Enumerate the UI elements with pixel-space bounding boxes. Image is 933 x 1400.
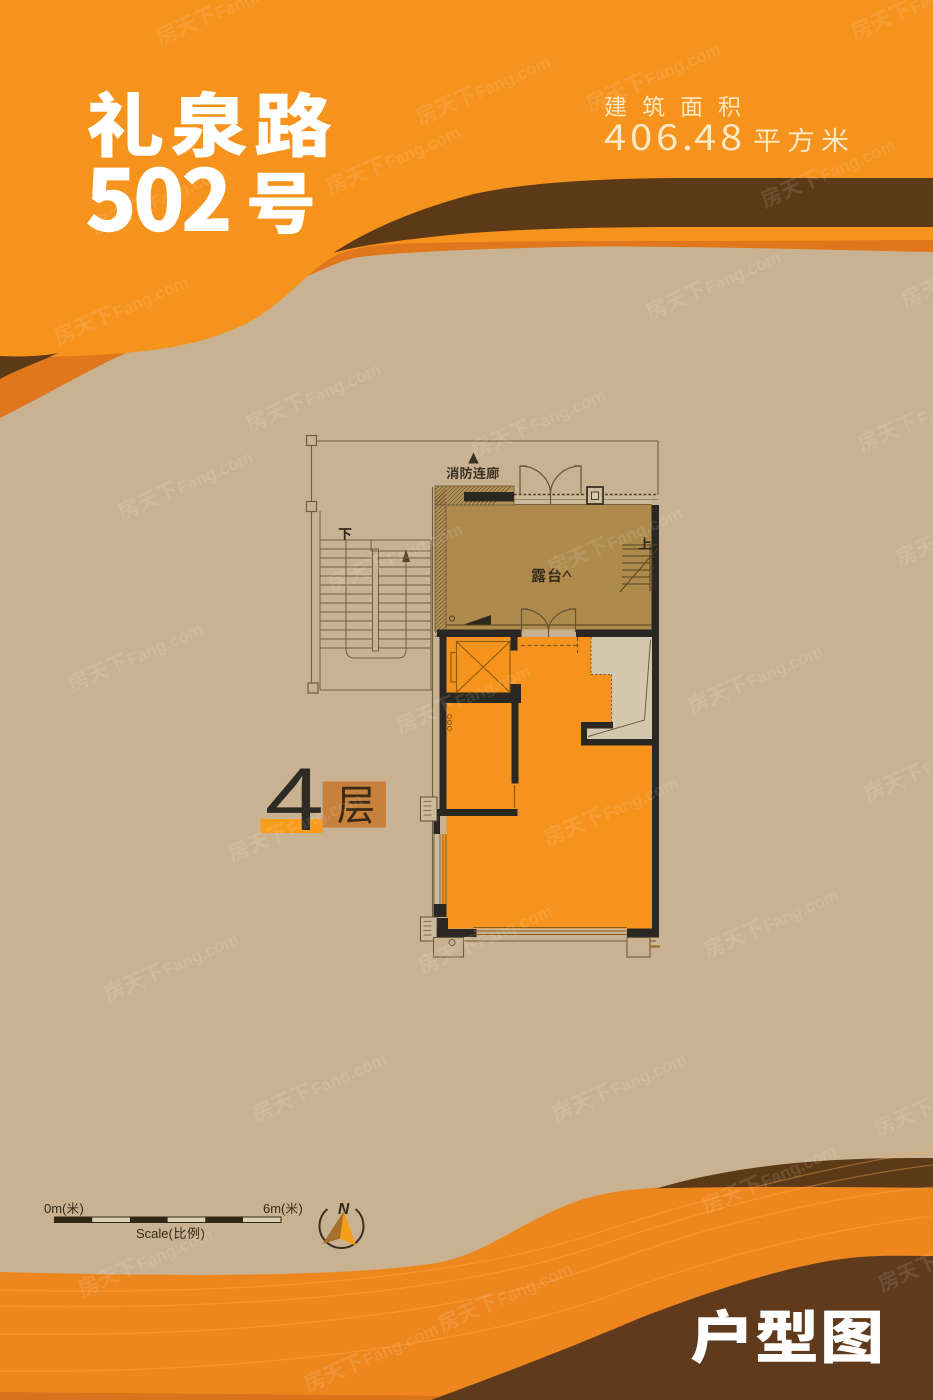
svg-text:0m(: 0m( [44, 1201, 67, 1216]
svg-text:): ) [299, 1201, 303, 1216]
svg-text:6m(: 6m( [263, 1201, 286, 1216]
svg-text:Scale(: Scale( [136, 1226, 174, 1241]
svg-text:): ) [80, 1201, 84, 1216]
